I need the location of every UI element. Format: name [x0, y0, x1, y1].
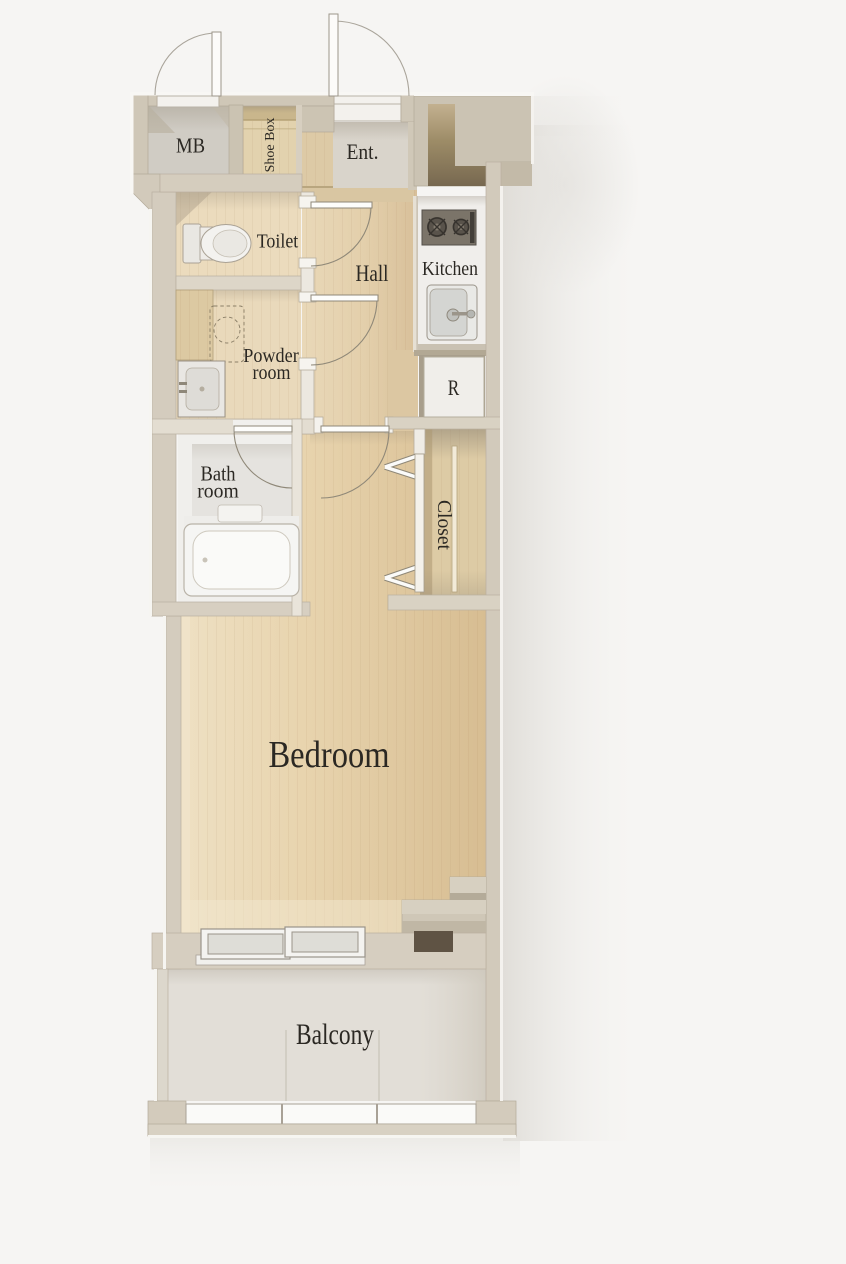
svg-text:Kitchen: Kitchen: [422, 258, 478, 280]
svg-text:room: room: [197, 479, 239, 503]
svg-text:Closet: Closet: [433, 500, 455, 550]
svg-text:Shoe Box: Shoe Box: [263, 118, 278, 173]
svg-text:MB: MB: [176, 134, 205, 158]
svg-text:Toilet: Toilet: [257, 231, 299, 253]
svg-text:Bedroom: Bedroom: [269, 734, 390, 776]
svg-text:Balcony: Balcony: [296, 1018, 374, 1051]
svg-text:Ent.: Ent.: [347, 139, 379, 164]
svg-text:room: room: [253, 362, 291, 384]
svg-text:Hall: Hall: [356, 261, 389, 286]
svg-text:R: R: [448, 375, 460, 400]
